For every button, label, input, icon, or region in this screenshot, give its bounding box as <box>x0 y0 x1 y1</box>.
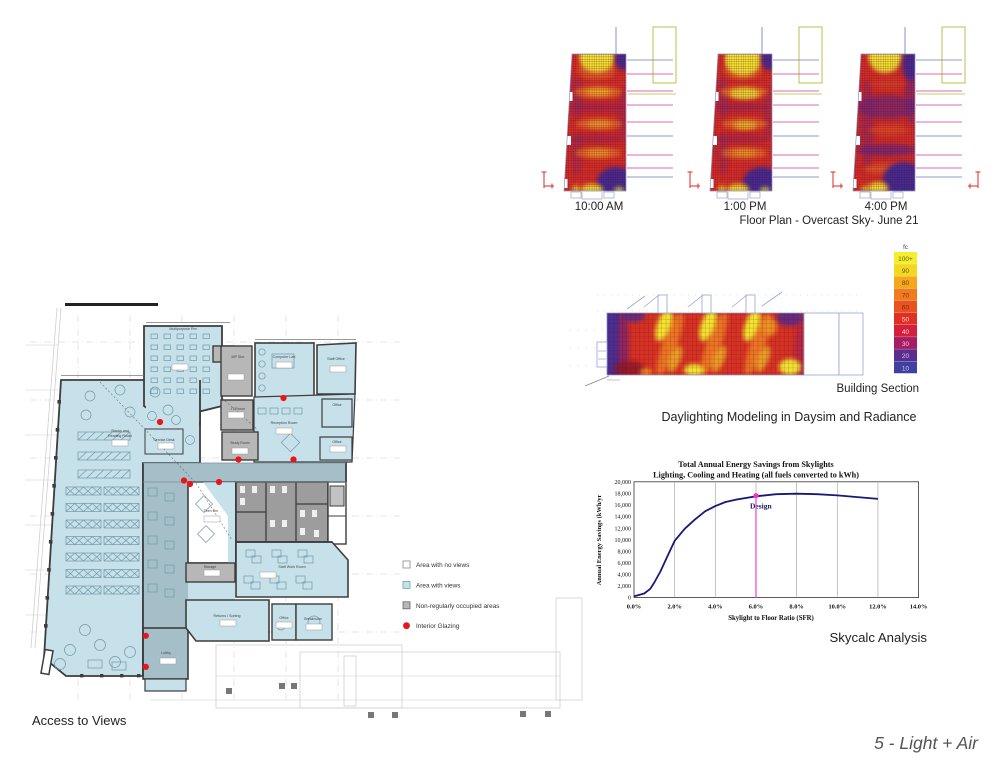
svg-text:Returns / Sorting: Returns / Sorting <box>214 614 241 618</box>
svg-text:8,000: 8,000 <box>618 549 632 555</box>
svg-text:10: 10 <box>902 365 910 372</box>
svg-text:10,000: 10,000 <box>615 538 632 544</box>
svg-text:Study Room: Study Room <box>230 441 250 445</box>
svg-text:60: 60 <box>902 305 910 312</box>
svg-text:Building Section: Building Section <box>837 383 919 395</box>
svg-text:Staff Work Room: Staff Work Room <box>278 565 305 569</box>
svg-text:Office: Office <box>332 440 341 444</box>
svg-text:Area with views: Area with views <box>416 582 460 589</box>
svg-text:50: 50 <box>902 317 910 324</box>
svg-text:IT Room: IT Room <box>231 407 245 411</box>
svg-text:MP Stor: MP Stor <box>232 355 246 359</box>
svg-text:Design: Design <box>750 502 772 511</box>
svg-text:Lobby: Lobby <box>161 651 171 655</box>
svg-text:1:00 PM: 1:00 PM <box>724 201 767 213</box>
svg-text:12,000: 12,000 <box>615 526 632 532</box>
svg-text:fc: fc <box>903 245 908 251</box>
svg-text:Floor Plan - Overcast Sky- Jun: Floor Plan - Overcast Sky- June 21 <box>740 215 919 227</box>
svg-text:20: 20 <box>902 353 910 360</box>
svg-text:20,000: 20,000 <box>615 480 632 486</box>
svg-text:Interior Glazing: Interior Glazing <box>416 623 460 630</box>
svg-text:0: 0 <box>628 596 631 602</box>
svg-text:Skycalc Analysis: Skycalc Analysis <box>830 630 928 645</box>
svg-text:2.0%: 2.0% <box>667 604 681 611</box>
svg-text:16,000: 16,000 <box>615 503 632 509</box>
svg-text:6,000: 6,000 <box>618 561 632 567</box>
svg-text:Reception Room: Reception Room <box>271 421 298 425</box>
svg-text:100+: 100+ <box>898 256 913 263</box>
svg-text:Access to Views: Access to Views <box>32 713 127 728</box>
svg-text:Daylighting Modeling in Daysim: Daylighting Modeling in Daysim and Radia… <box>662 410 917 424</box>
svg-text:Teen Rm: Teen Rm <box>204 509 218 513</box>
svg-text:0.0%: 0.0% <box>627 604 641 611</box>
svg-text:Service Desk: Service Desk <box>153 438 174 442</box>
svg-text:10.0%: 10.0% <box>828 604 846 611</box>
svg-text:Multipurpose Rm: Multipurpose Rm <box>169 327 196 331</box>
svg-text:18,000: 18,000 <box>615 492 632 498</box>
svg-text:Staff Office: Staff Office <box>327 357 345 361</box>
svg-text:4:00 PM: 4:00 PM <box>865 201 908 213</box>
svg-text:90: 90 <box>902 268 910 275</box>
svg-text:Total Annual Energy Savings fr: Total Annual Energy Savings from Skyligh… <box>678 460 833 469</box>
svg-text:4.0%: 4.0% <box>708 604 722 611</box>
svg-text:10:00 AM: 10:00 AM <box>575 201 624 213</box>
svg-text:2,000: 2,000 <box>618 584 632 590</box>
svg-text:Computer Lab: Computer Lab <box>273 355 296 359</box>
svg-text:6.0%: 6.0% <box>749 604 763 611</box>
svg-text:Area with no views: Area with no views <box>416 562 469 569</box>
svg-text:Office: Office <box>332 403 341 407</box>
svg-text:8.0%: 8.0% <box>789 604 803 611</box>
svg-text:5 - Light + Air: 5 - Light + Air <box>874 733 979 753</box>
svg-text:Skylight to Floor Ratio (SFR): Skylight to Floor Ratio (SFR) <box>728 615 814 622</box>
svg-text:14,000: 14,000 <box>615 515 632 521</box>
svg-text:30: 30 <box>902 341 910 348</box>
svg-text:Lighting, Cooling and Heating: Lighting, Cooling and Heating (all fuels… <box>653 471 859 480</box>
svg-text:80: 80 <box>902 280 910 287</box>
svg-text:Annual Energy Savings (kWh/yr: Annual Energy Savings (kWh/yr <box>596 494 603 585</box>
svg-text:Stacks and: Stacks and <box>111 429 129 433</box>
svg-text:12.0%: 12.0% <box>869 604 887 611</box>
svg-text:70: 70 <box>902 292 910 299</box>
svg-text:Non-regularly occupied areas: Non-regularly occupied areas <box>416 603 499 610</box>
svg-text:14.0%: 14.0% <box>910 604 928 611</box>
svg-text:Breakroom: Breakroom <box>304 617 322 621</box>
svg-text:40: 40 <box>902 329 910 336</box>
svg-text:Reading Room: Reading Room <box>108 434 132 438</box>
svg-text:Office: Office <box>279 616 288 620</box>
svg-text:Storage: Storage <box>204 565 217 569</box>
svg-text:4,000: 4,000 <box>618 573 632 579</box>
